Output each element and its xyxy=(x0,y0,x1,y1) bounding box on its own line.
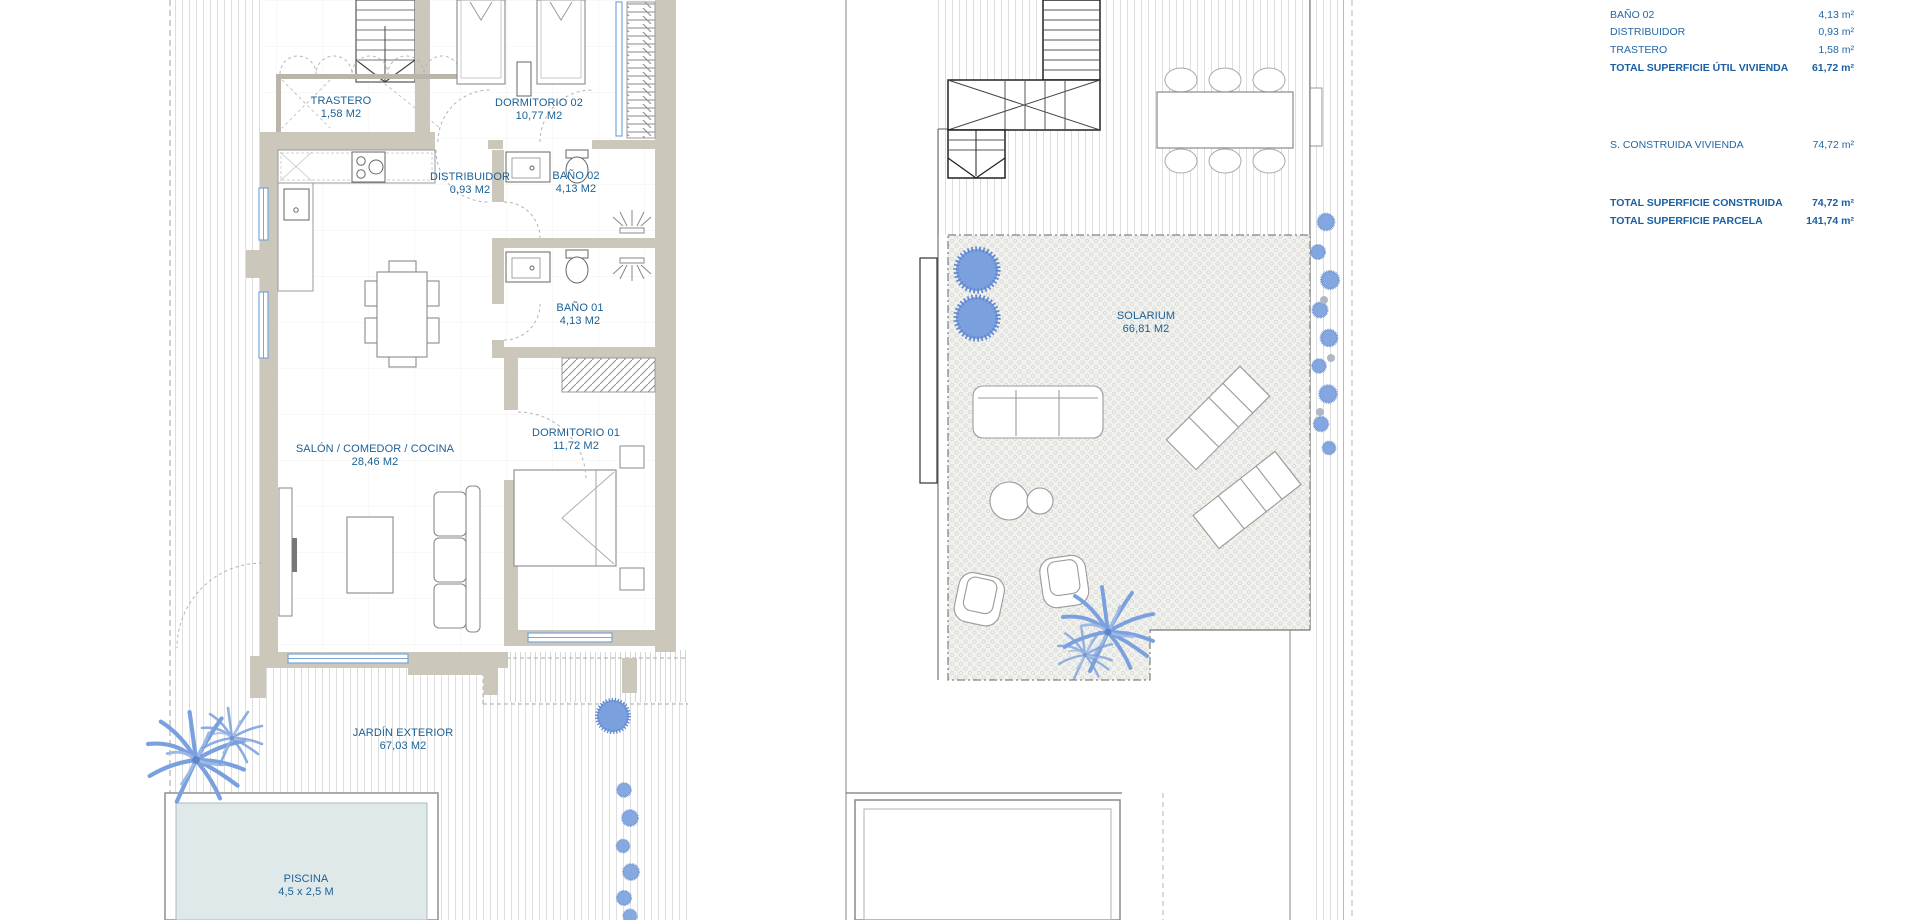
room-label-bano-02: BAÑO 024,13 M2 xyxy=(552,170,599,196)
table-row: S. CONSTRUIDA VIVIENDA74,72 m² xyxy=(1610,139,1854,151)
table-row: BAÑO 024,13 m² xyxy=(1610,9,1854,21)
outdoor-sofa xyxy=(973,386,1103,438)
hedge-ladder-strip xyxy=(627,2,655,138)
solarium-deck xyxy=(948,235,1310,680)
room-label-trastero: TRASTERO1,58 M2 xyxy=(311,95,372,121)
table-row: DISTRIBUIDOR0,93 m² xyxy=(1610,26,1854,38)
table-row-total-construida: TOTAL SUPERFICIE CONSTRUIDA74,72 m² xyxy=(1610,197,1854,209)
room-label-distribuidor: DISTRIBUIDOR0,93 M2 xyxy=(430,171,510,197)
stair-left-plan xyxy=(356,0,415,82)
wardrobe xyxy=(562,358,655,392)
sofa xyxy=(434,486,480,632)
floorplan-page: TRASTERO1,58 M2 DORMITORIO 0210,77 M2 DI… xyxy=(0,0,1920,920)
floorplan-linework xyxy=(0,0,1920,920)
roof-dining-set xyxy=(1157,68,1293,173)
pool-outline-roof xyxy=(855,800,1120,920)
room-label-dormitorio-01: DORMITORIO 0111,72 M2 xyxy=(532,427,620,453)
right-plot xyxy=(846,0,1352,920)
room-label-salon: SALÓN / COMEDOR / COCINA28,46 M2 xyxy=(296,443,454,469)
room-label-piscina: PISCINA4,5 x 2,5 M xyxy=(278,873,334,899)
room-label-dormitorio-02: DORMITORIO 0210,77 M2 xyxy=(495,97,583,123)
planter-box xyxy=(920,258,937,483)
room-label-bano-01: BAÑO 014,13 M2 xyxy=(556,302,603,328)
room-label-jardin-exterior: JARDÍN EXTERIOR67,03 M2 xyxy=(353,727,454,753)
stove-icon xyxy=(352,152,385,182)
pool xyxy=(165,793,438,920)
table-row-total-util: TOTAL SUPERFICIE ÚTIL VIVIENDA61,72 m² xyxy=(1610,62,1854,74)
room-label-solarium: SOLARIUM66,81 M2 xyxy=(1117,310,1175,336)
table-row-total-parcela: TOTAL SUPERFICIE PARCELA141,74 m² xyxy=(1610,215,1854,227)
tv-icon xyxy=(292,538,297,572)
table-row: TRASTERO1,58 m² xyxy=(1610,44,1854,56)
